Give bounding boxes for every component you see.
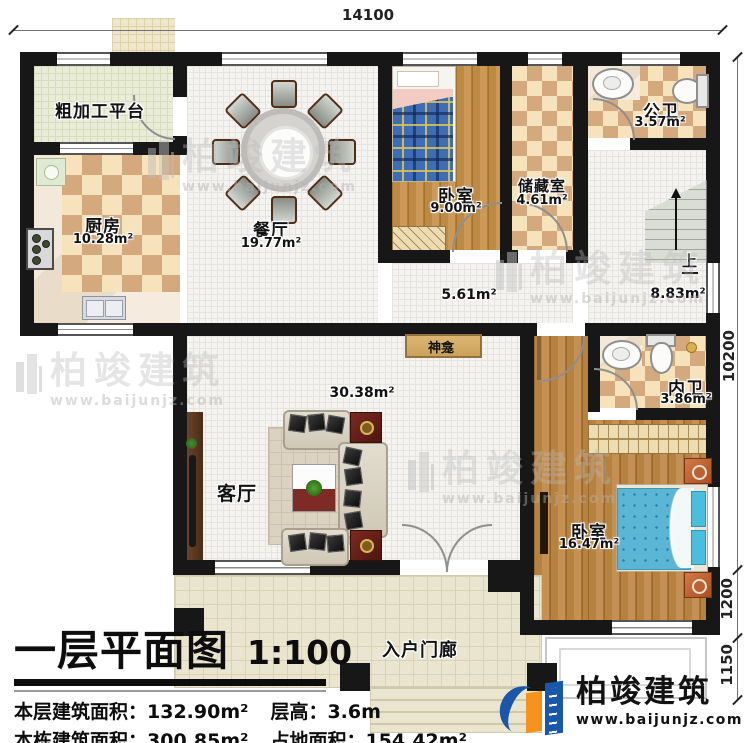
wall-entry-corner xyxy=(488,560,520,592)
kitchen-sink-bowl xyxy=(44,165,59,180)
wall-public-bath-bottom xyxy=(630,138,706,150)
floor-drain-icon xyxy=(686,342,697,353)
sofa-bottom xyxy=(281,528,349,566)
wall-left xyxy=(20,52,34,336)
stairs-arrow-line xyxy=(675,196,677,250)
door-corridor-leaf xyxy=(537,336,541,380)
title-underline-thin xyxy=(14,690,326,692)
label-bedroom-top-area: 9.00m² xyxy=(430,201,481,216)
dimension-right-total: 10200 xyxy=(720,330,738,382)
sofa-cushion xyxy=(326,534,344,552)
plan-title: 一层平面图 xyxy=(14,628,229,674)
knob xyxy=(692,465,707,480)
gold-ring xyxy=(360,539,374,553)
plan-scale: 1:100 xyxy=(247,633,352,674)
window-dining xyxy=(222,52,327,66)
public-bath-toilet-tank xyxy=(696,74,709,108)
burner xyxy=(32,234,41,243)
wall-storage-bottom xyxy=(566,250,588,263)
coffee-table xyxy=(292,464,336,512)
sink-bowl xyxy=(86,300,104,317)
window-bedroom-top xyxy=(403,52,477,66)
label-shrine: 神龛 xyxy=(428,337,454,356)
floor-plan: 柏竣建筑 www.baijunjz.com 柏竣建筑 www.baijunjz.… xyxy=(0,0,750,743)
dining-chair xyxy=(212,139,240,165)
gold-ring xyxy=(360,421,374,435)
building-area-text: 本栋建筑面积：300.85m² xyxy=(14,726,248,743)
wall-top xyxy=(20,52,720,66)
sofa-cushion xyxy=(344,511,364,531)
sink-bowl xyxy=(105,300,123,317)
sofa-right xyxy=(338,442,388,538)
label-storage-area: 4.61m² xyxy=(516,193,567,208)
dimension-line-top xyxy=(13,30,723,31)
pillow xyxy=(691,530,706,565)
dining-chair xyxy=(328,139,356,165)
wall-living-left xyxy=(173,336,187,575)
title-block: 一层平面图 1:100 本层建筑面积：132.90m² 层高：3.6m 本栋建筑… xyxy=(14,628,467,743)
label-dining-area: 19.77m² xyxy=(241,236,301,251)
wardrobe-main-bedroom xyxy=(588,424,708,454)
label-platform: 粗加工平台 xyxy=(55,97,145,122)
window-storage xyxy=(528,52,562,66)
sink-bowl xyxy=(612,347,630,361)
window-bedroom-main xyxy=(612,620,692,635)
window-kitchen-north xyxy=(60,142,133,155)
stairs-arrow-head xyxy=(671,188,681,198)
dining-table-top xyxy=(259,126,313,180)
wall-living-bottom-a xyxy=(173,560,215,575)
wardrobe-top-bedroom xyxy=(392,226,446,252)
double-sink-icon xyxy=(82,296,126,320)
window-platform xyxy=(57,52,110,66)
nightstand-bottom xyxy=(684,572,712,598)
kitchen-sink-icon xyxy=(36,158,66,186)
plant-icon xyxy=(306,480,322,496)
sink-bowl xyxy=(603,76,621,90)
side-table-top xyxy=(350,412,382,443)
wall-bedroom-main-bottom-a xyxy=(520,620,612,635)
label-living-area: 30.38m² xyxy=(329,385,394,401)
window-bedroom-main-east xyxy=(706,487,720,567)
burner xyxy=(42,240,50,248)
wall-storage-bath xyxy=(573,52,588,263)
label-kitchen-area: 10.28m² xyxy=(73,232,133,247)
dimension-top-value: 14100 xyxy=(342,6,394,24)
footprint-area-text: 占地面积：154.42m² xyxy=(270,726,466,743)
dimension-right-seg1: 1200 xyxy=(718,578,736,620)
wall-platform-dining-upper xyxy=(173,52,187,97)
pillow xyxy=(691,491,706,527)
wall-bedroom-main-bottom-b xyxy=(692,620,720,635)
bedroom-tv-icon xyxy=(540,492,548,554)
outside-steps-hatch xyxy=(112,18,175,52)
side-table-bottom xyxy=(350,530,382,561)
wall-platform-dining-lower xyxy=(173,136,187,155)
label-bedroom-main-area: 16.47m² xyxy=(559,537,619,552)
sofa-cushion xyxy=(342,446,362,466)
bed-main xyxy=(616,484,708,572)
burner xyxy=(32,256,41,265)
sofa-cushion xyxy=(343,489,362,508)
public-bath-sink-icon xyxy=(592,68,634,100)
sofa-cushion xyxy=(326,415,346,435)
label-living: 客厅 xyxy=(217,479,257,506)
bed-top xyxy=(392,66,456,182)
burner xyxy=(32,245,41,254)
floor-area-text: 本层建筑面积：132.90m² xyxy=(14,697,248,724)
window-public-bath xyxy=(622,52,680,66)
stove-icon xyxy=(26,228,54,270)
company-website: www.baijunjz.com xyxy=(576,712,743,728)
wall-bedroom-top-bottom-a xyxy=(378,250,450,263)
pillow xyxy=(397,71,439,87)
label-stairs-up: 上 xyxy=(682,250,698,274)
window-kitchen-pass xyxy=(58,323,133,336)
title-underline-thick xyxy=(14,679,326,686)
company-logo-icon xyxy=(500,676,566,740)
room-kitchen-floor xyxy=(62,155,180,292)
sofa-cushion xyxy=(344,467,363,486)
dining-table xyxy=(241,108,325,192)
watermark-building-icon xyxy=(16,354,42,394)
label-public-bath-area: 3.57m² xyxy=(634,115,685,130)
logo-bar-orange xyxy=(526,691,542,733)
label-inner-bath-area: 3.86m² xyxy=(660,392,711,407)
window-stair xyxy=(706,263,720,313)
knob xyxy=(692,579,707,594)
inner-bath-sink-icon xyxy=(602,340,642,370)
wall-inner-bath-bottom xyxy=(636,408,706,420)
tv-icon xyxy=(189,455,196,547)
company-logo: 柏竣建筑 www.baijunjz.com xyxy=(500,676,743,740)
logo-bar-blue xyxy=(545,681,563,736)
wall-dining-bedroom xyxy=(378,52,392,263)
dining-chair xyxy=(271,80,297,108)
bed-top-fold xyxy=(393,89,453,115)
nightstand-top xyxy=(684,458,712,484)
plant-small-icon xyxy=(186,438,197,449)
logo-swoosh xyxy=(492,679,553,741)
sofa-cushion xyxy=(308,532,327,551)
inner-bath-toilet-bowl xyxy=(650,342,673,374)
company-name: 柏竣建筑 xyxy=(576,676,743,709)
wall-living-corridor xyxy=(520,336,534,620)
storey-height-text: 层高：3.6m xyxy=(270,697,380,724)
sofa-cushion xyxy=(288,533,307,552)
wall-bedroom-top-bottom-b xyxy=(500,250,518,263)
sofa-cushion xyxy=(288,414,307,433)
label-hallway-area: 5.61m² xyxy=(441,287,496,303)
label-stair-hall-area: 8.83m² xyxy=(650,286,705,302)
sofa-cushion xyxy=(307,413,326,432)
